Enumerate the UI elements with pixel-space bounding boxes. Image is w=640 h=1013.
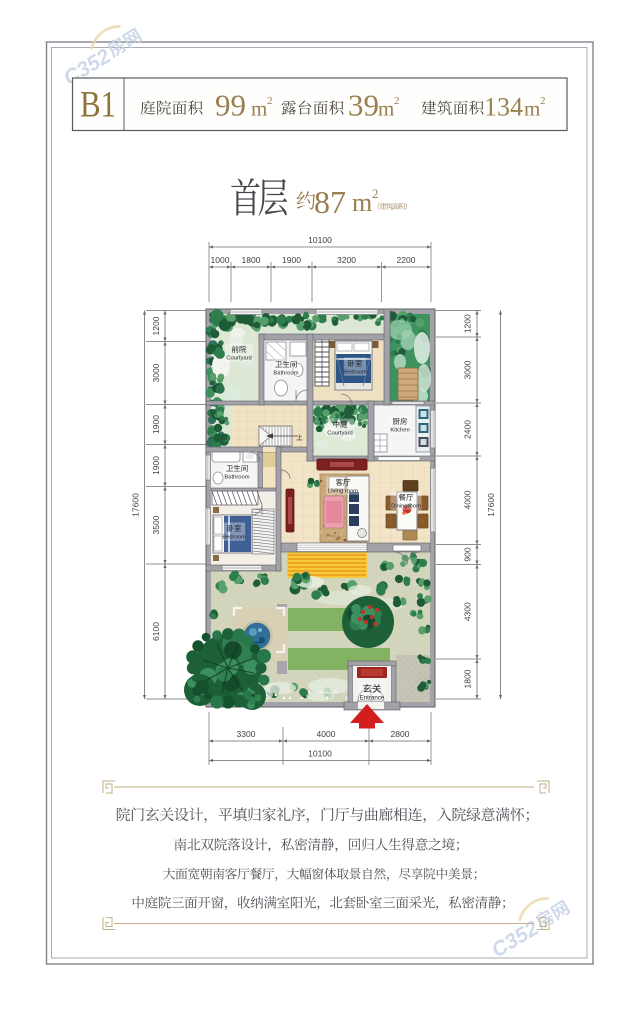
svg-text:1900: 1900 (151, 456, 161, 475)
svg-text:6100: 6100 (151, 622, 161, 641)
svg-text:Bedroom: Bedroom (222, 534, 246, 540)
svg-text:3300: 3300 (237, 729, 256, 739)
svg-text:134: 134 (484, 93, 523, 122)
svg-text:2: 2 (394, 95, 400, 107)
svg-text:2200: 2200 (397, 255, 416, 265)
svg-text:B1: B1 (80, 85, 116, 126)
svg-text:Bathroom: Bathroom (224, 474, 249, 480)
svg-text:Bathroom: Bathroom (273, 370, 298, 376)
svg-text:4000: 4000 (317, 729, 336, 739)
svg-text:m: m (524, 97, 540, 121)
svg-text:Diningroom: Diningroom (391, 503, 421, 509)
svg-text:m: m (352, 188, 372, 217)
svg-text:39: 39 (348, 88, 379, 123)
svg-text:1000: 1000 (211, 255, 230, 265)
svg-text:3500: 3500 (151, 515, 161, 534)
svg-text:4000: 4000 (463, 490, 473, 509)
svg-text:3000: 3000 (463, 360, 473, 379)
svg-text:m: m (378, 97, 394, 121)
svg-text:Bedroom: Bedroom (343, 369, 367, 375)
svg-text:10100: 10100 (308, 749, 332, 759)
svg-text:Courtyard: Courtyard (327, 430, 352, 436)
svg-text:99: 99 (215, 88, 246, 123)
svg-text:10100: 10100 (308, 235, 332, 245)
svg-text:1200: 1200 (463, 314, 473, 333)
svg-text:87: 87 (314, 184, 346, 220)
svg-text:17600: 17600 (486, 493, 496, 517)
svg-text:Entrance: Entrance (360, 695, 385, 702)
svg-text:1800: 1800 (463, 669, 473, 688)
svg-text:1200: 1200 (151, 316, 161, 335)
svg-text:1800: 1800 (242, 255, 261, 265)
svg-text:2: 2 (372, 186, 379, 201)
svg-text:1900: 1900 (282, 255, 301, 265)
svg-text:Kitchen: Kitchen (390, 427, 409, 433)
svg-text:m: m (251, 97, 267, 121)
svg-text:2: 2 (267, 95, 273, 107)
svg-text:17600: 17600 (131, 493, 141, 517)
svg-text:Courtyard: Courtyard (226, 355, 251, 361)
svg-text:2800: 2800 (391, 729, 410, 739)
svg-text:900: 900 (463, 547, 473, 561)
svg-text:3200: 3200 (337, 255, 356, 265)
svg-text:Living room: Living room (328, 488, 358, 494)
svg-text:1900: 1900 (151, 415, 161, 434)
svg-text:2: 2 (540, 95, 546, 107)
svg-text:3000: 3000 (151, 363, 161, 382)
svg-text:4300: 4300 (463, 602, 473, 621)
svg-text:2400: 2400 (463, 420, 473, 439)
